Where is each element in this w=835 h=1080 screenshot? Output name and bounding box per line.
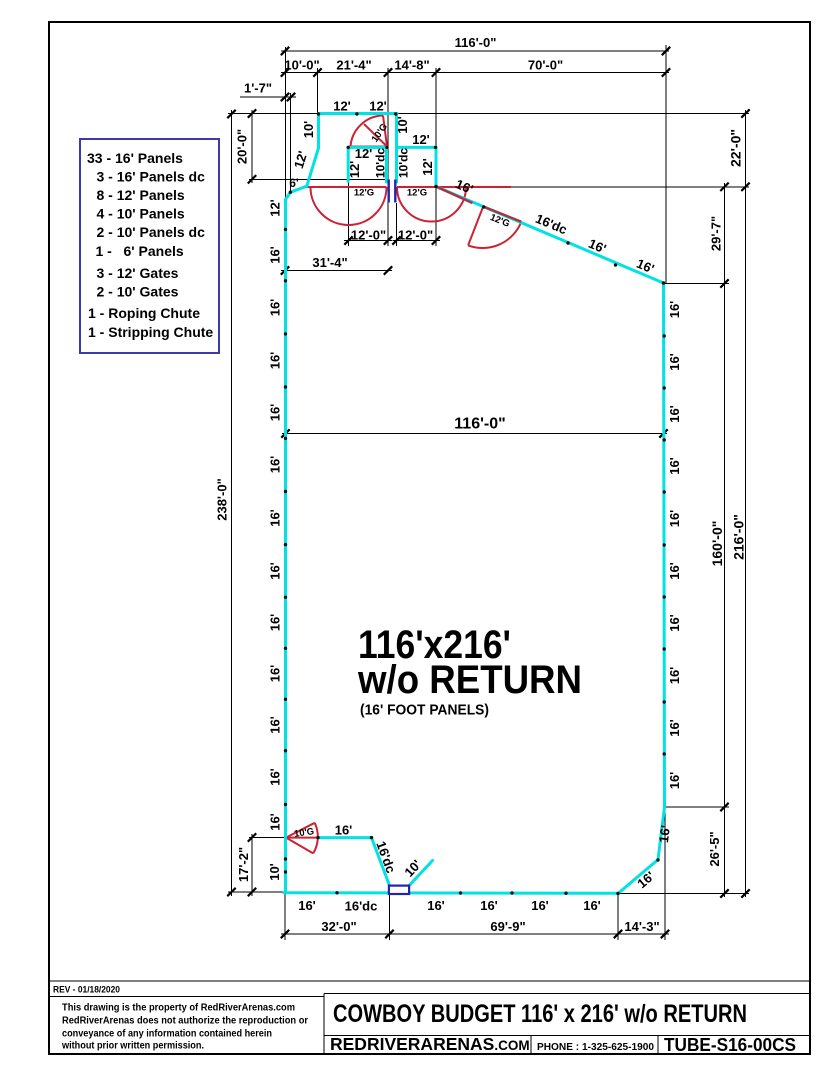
svg-text:1 - 6' Panels: 1 - 6' Panels (96, 243, 184, 259)
svg-text:16': 16' (583, 898, 601, 913)
svg-text:10': 10' (301, 121, 316, 139)
svg-text:3 - 16' Panels dc: 3 - 16' Panels dc (97, 169, 206, 185)
svg-text:16': 16' (335, 823, 353, 838)
svg-text:12'-0": 12'-0" (351, 228, 386, 243)
svg-text:w/o RETURN: w/o RETURN (357, 658, 582, 702)
svg-text:16': 16' (268, 665, 283, 683)
svg-text:2 - 10' Gates: 2 - 10' Gates (97, 284, 179, 300)
svg-text:12': 12' (355, 146, 373, 161)
svg-text:1'-7": 1'-7" (244, 81, 272, 96)
svg-text:2 - 10' Panels dc: 2 - 10' Panels dc (97, 224, 206, 240)
svg-text:21'-4": 21'-4" (336, 58, 371, 73)
svg-text:16': 16' (268, 246, 283, 264)
svg-text:238'-0": 238'-0" (215, 478, 230, 521)
svg-text:16': 16' (268, 404, 283, 422)
svg-text:4 - 10' Panels: 4 - 10' Panels (97, 206, 185, 222)
svg-text:12': 12' (347, 161, 362, 179)
svg-text:16': 16' (667, 353, 682, 371)
svg-text:8 - 12' Panels: 8 - 12' Panels (97, 187, 185, 203)
svg-text:17'-2": 17'-2" (236, 847, 251, 882)
svg-text:12': 12' (333, 99, 351, 114)
svg-text:29'-7": 29'-7" (709, 216, 724, 251)
svg-text:COWBOY BUDGET 116' x 216' w/o: COWBOY BUDGET 116' x 216' w/o RETURN (333, 1000, 747, 1028)
svg-text:32'-0": 32'-0" (321, 919, 356, 934)
svg-text:16': 16' (268, 813, 283, 831)
svg-text:10'dc: 10'dc (374, 148, 388, 179)
svg-text:(16' FOOT PANELS): (16' FOOT PANELS) (360, 703, 489, 719)
svg-text:16': 16' (531, 898, 549, 913)
svg-text:12'G: 12'G (407, 188, 427, 199)
svg-text:This drawing is the property o: This drawing is the property of RedRiver… (62, 1003, 295, 1014)
svg-text:16': 16' (667, 667, 682, 685)
svg-text:1 - Stripping Chute: 1 - Stripping Chute (88, 324, 213, 340)
svg-text:12'-0": 12'-0" (398, 228, 433, 243)
svg-text:16'dc: 16'dc (345, 899, 378, 914)
svg-text:26'-5": 26'-5" (707, 831, 722, 866)
svg-text:TUBE-S16-00CS: TUBE-S16-00CS (664, 1035, 796, 1055)
svg-text:16': 16' (268, 562, 283, 580)
svg-text:116'-0": 116'-0" (454, 416, 505, 433)
svg-text:16': 16' (667, 719, 682, 737)
svg-text:20'-0": 20'-0" (235, 129, 250, 164)
svg-text:12'G: 12'G (354, 188, 374, 199)
svg-text:conveyance of any information: conveyance of any information contained … (62, 1029, 272, 1040)
svg-text:116'-0": 116'-0" (455, 35, 497, 50)
svg-text:160'-0": 160'-0" (709, 521, 725, 567)
svg-text:16': 16' (268, 299, 283, 317)
svg-text:RedRiverArenas does not author: RedRiverArenas does not authorize the re… (62, 1016, 308, 1027)
svg-text:69'-9": 69'-9" (490, 919, 525, 934)
svg-text:16': 16' (268, 456, 283, 474)
svg-text:12': 12' (369, 99, 387, 114)
svg-text:3 - 12' Gates: 3 - 12' Gates (97, 265, 179, 281)
svg-text:10': 10' (267, 863, 282, 881)
svg-text:31'-4": 31'-4" (312, 255, 347, 270)
svg-text:10'-0": 10'-0" (284, 58, 319, 73)
svg-text:PHONE : 1-325-625-1900: PHONE : 1-325-625-1900 (537, 1041, 654, 1053)
svg-text:16': 16' (427, 898, 445, 913)
svg-text:REV - 01/18/2020: REV - 01/18/2020 (53, 985, 120, 996)
svg-text:without prior written permissi: without prior written permission. (61, 1041, 204, 1052)
svg-text:16': 16' (667, 562, 682, 580)
svg-text:12': 12' (420, 158, 435, 176)
svg-text:16': 16' (298, 898, 316, 913)
svg-text:12': 12' (412, 132, 430, 147)
svg-text:16': 16' (667, 457, 682, 475)
svg-text:1 - Roping Chute: 1 - Roping Chute (88, 305, 200, 321)
svg-text:14'-3": 14'-3" (624, 919, 659, 934)
svg-text:16': 16' (268, 614, 283, 632)
svg-text:16': 16' (667, 405, 682, 423)
svg-text:14'-8": 14'-8" (394, 58, 429, 73)
svg-text:10'dc: 10'dc (397, 148, 411, 179)
svg-text:16': 16' (268, 768, 283, 786)
svg-text:16': 16' (667, 510, 682, 528)
svg-text:12': 12' (268, 199, 283, 217)
svg-text:10': 10' (395, 116, 410, 134)
svg-text:16': 16' (667, 614, 682, 632)
svg-text:16': 16' (667, 772, 682, 790)
svg-text:70'-0": 70'-0" (528, 58, 563, 73)
svg-text:33 - 16' Panels: 33 - 16' Panels (87, 150, 183, 166)
svg-text:22'-0": 22'-0" (728, 129, 744, 167)
svg-text:16': 16' (268, 352, 283, 370)
svg-text:16': 16' (268, 716, 283, 734)
svg-text:16': 16' (268, 509, 283, 527)
svg-text:6': 6' (289, 176, 299, 190)
svg-text:16': 16' (656, 824, 673, 843)
svg-text:16': 16' (480, 898, 498, 913)
svg-text:16': 16' (667, 301, 682, 319)
svg-text:216'-0": 216'-0" (731, 514, 747, 560)
